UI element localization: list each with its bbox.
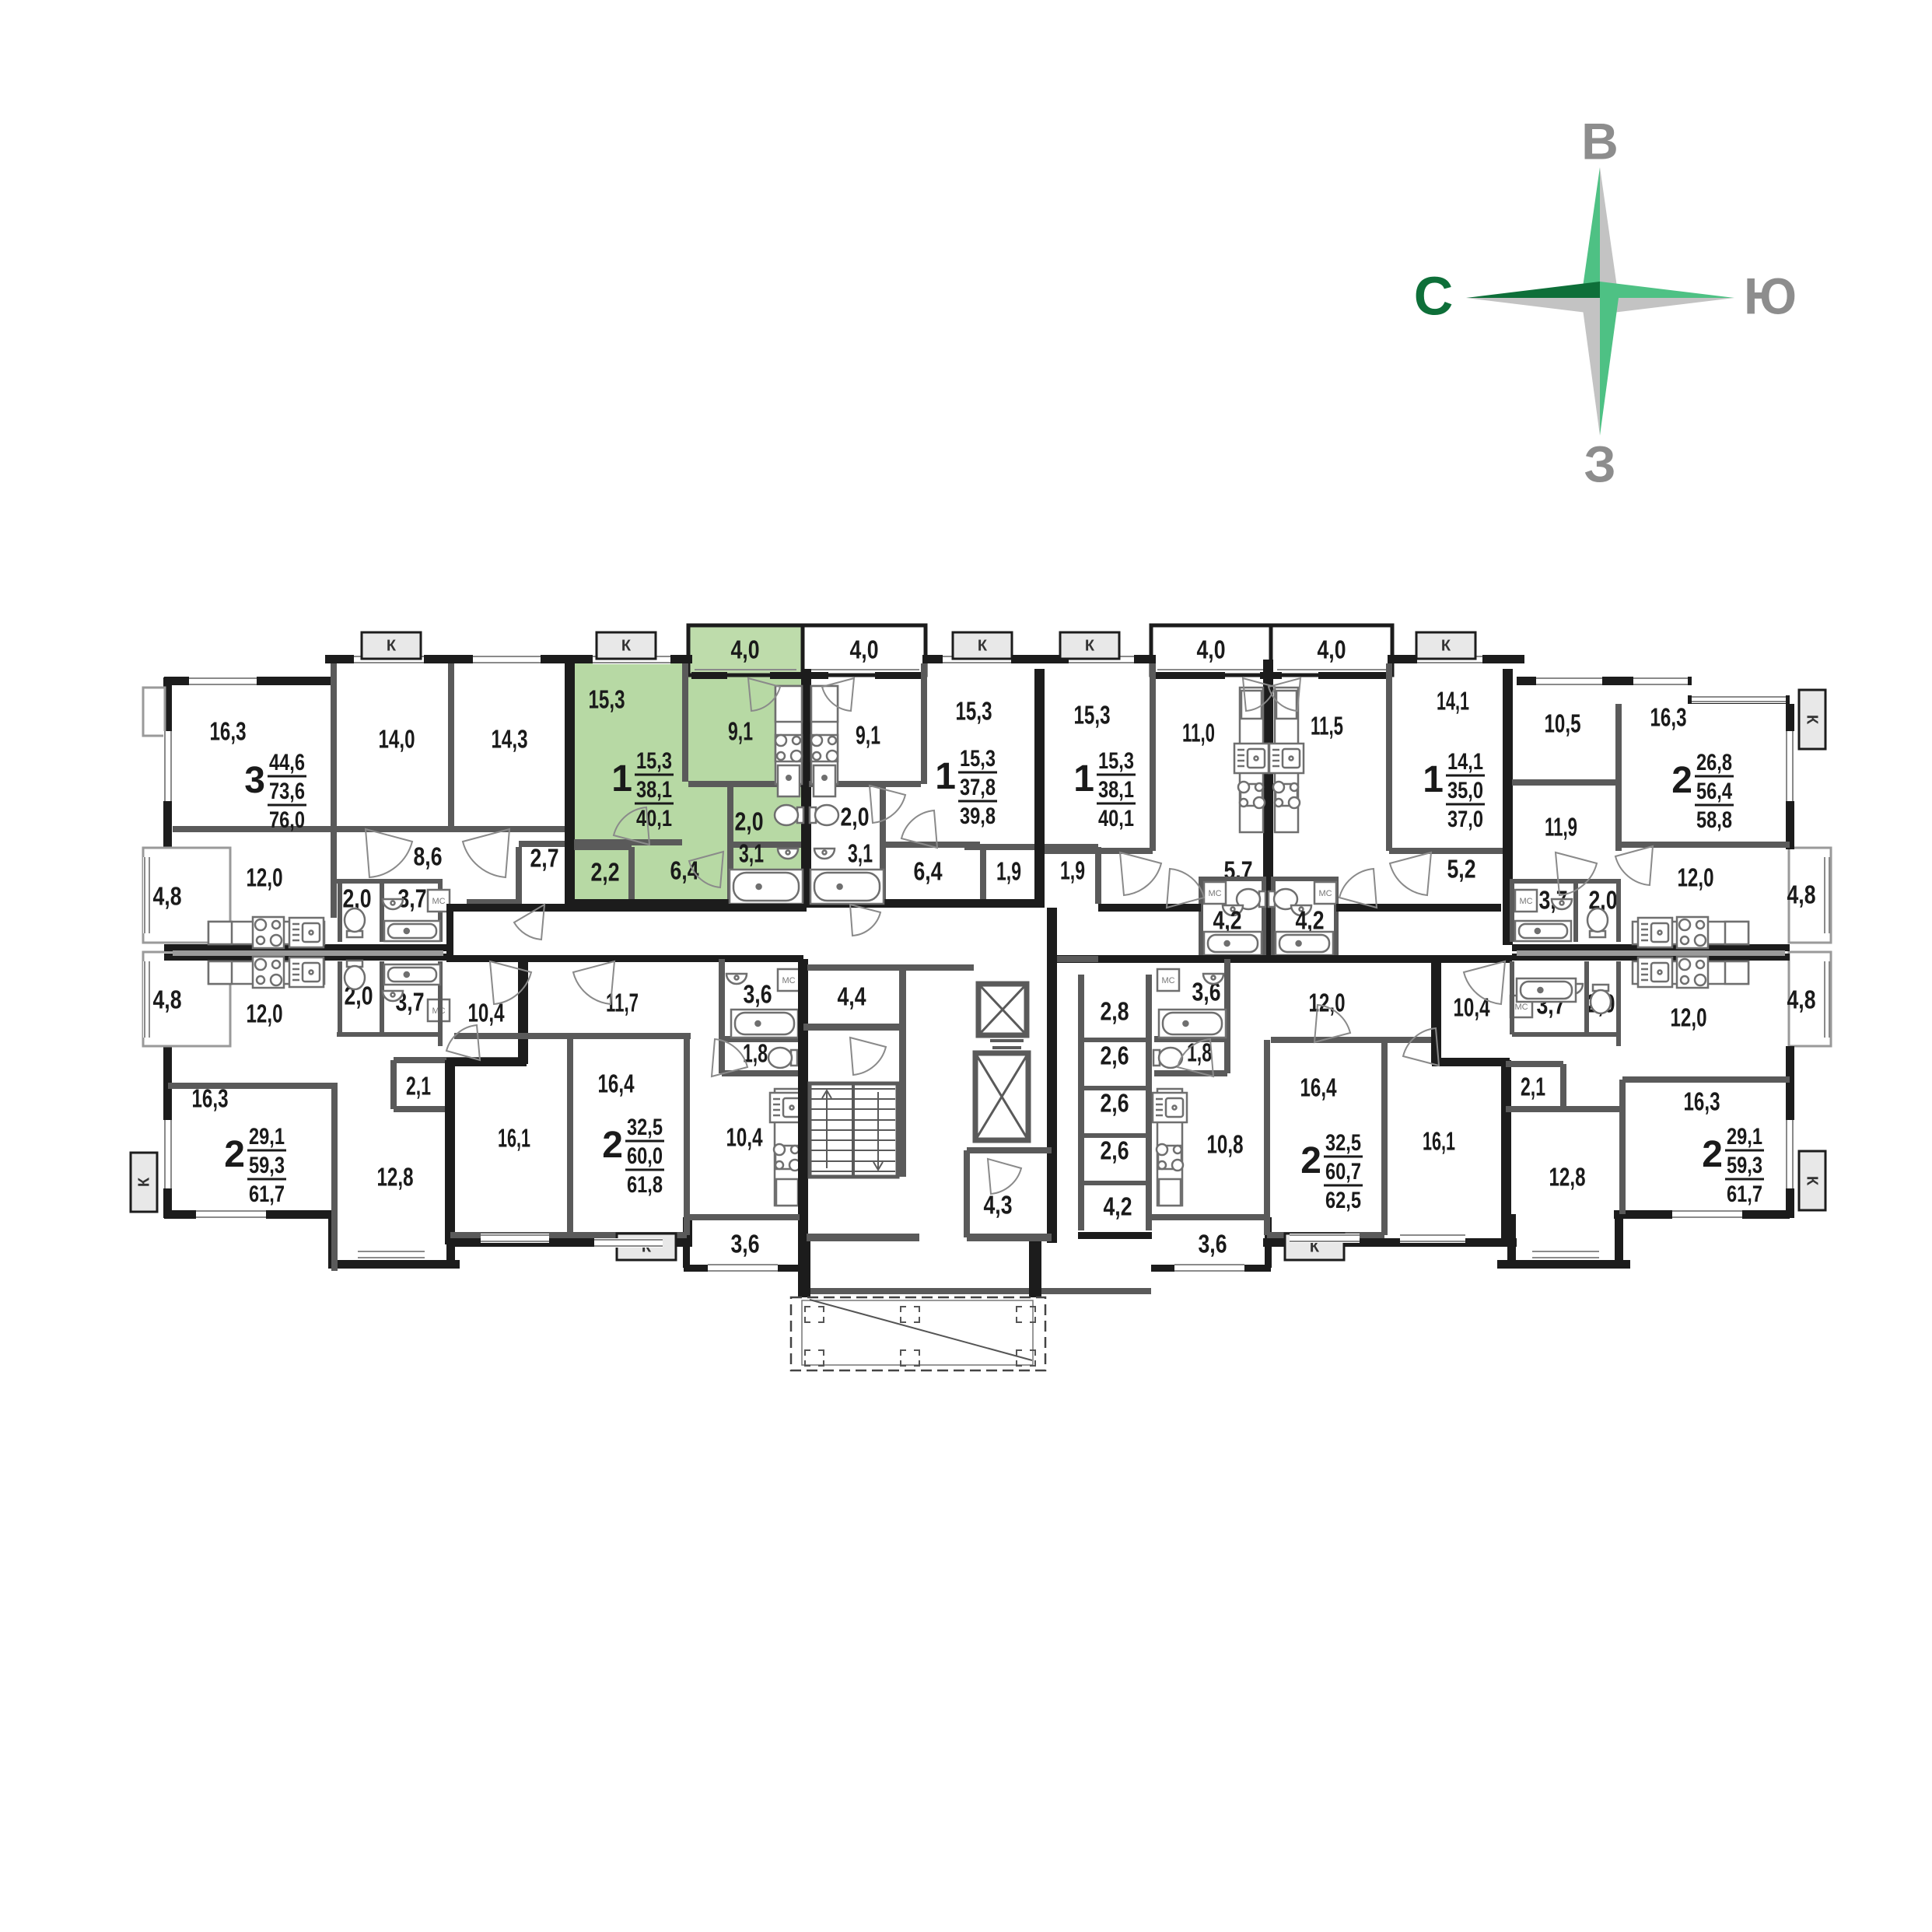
svg-text:1: 1 xyxy=(1073,758,1094,800)
svg-text:10,8: 10,8 xyxy=(1207,1130,1244,1159)
svg-text:14,1: 14,1 xyxy=(1447,749,1483,775)
svg-text:З: З xyxy=(1584,435,1615,492)
svg-text:10,4: 10,4 xyxy=(726,1123,763,1152)
svg-text:1: 1 xyxy=(935,756,956,797)
svg-text:1: 1 xyxy=(1423,759,1444,800)
svg-text:МС: МС xyxy=(1519,897,1532,906)
svg-text:2,0: 2,0 xyxy=(735,807,764,836)
svg-text:61,8: 61,8 xyxy=(627,1172,663,1198)
svg-text:К: К xyxy=(387,637,397,654)
svg-text:2,0: 2,0 xyxy=(841,803,870,831)
svg-text:2,6: 2,6 xyxy=(1101,1089,1129,1118)
svg-text:2: 2 xyxy=(602,1125,623,1166)
svg-text:2: 2 xyxy=(224,1134,245,1175)
svg-text:К: К xyxy=(621,637,632,654)
svg-text:35,0: 35,0 xyxy=(1447,778,1483,803)
svg-text:4,0: 4,0 xyxy=(1197,635,1226,664)
svg-text:59,3: 59,3 xyxy=(1727,1153,1762,1178)
svg-text:16,3: 16,3 xyxy=(210,717,247,746)
svg-text:15,3: 15,3 xyxy=(960,746,996,772)
svg-text:73,6: 73,6 xyxy=(269,779,305,804)
svg-text:4,3: 4,3 xyxy=(984,1191,1013,1220)
svg-text:3,6: 3,6 xyxy=(731,1230,760,1258)
svg-text:37,8: 37,8 xyxy=(960,775,996,800)
svg-text:2: 2 xyxy=(1300,1140,1321,1181)
svg-text:16,3: 16,3 xyxy=(1684,1087,1720,1116)
svg-text:58,8: 58,8 xyxy=(1696,807,1732,833)
svg-text:3,1: 3,1 xyxy=(739,839,764,868)
svg-text:16,1: 16,1 xyxy=(1423,1127,1455,1156)
svg-text:11,5: 11,5 xyxy=(1311,712,1343,740)
svg-text:39,8: 39,8 xyxy=(960,803,996,829)
svg-text:14,0: 14,0 xyxy=(379,725,415,754)
svg-text:2,6: 2,6 xyxy=(1101,1041,1129,1070)
svg-text:8,6: 8,6 xyxy=(414,842,443,871)
svg-text:12,0: 12,0 xyxy=(1671,1003,1707,1032)
svg-text:МС: МС xyxy=(1514,1003,1528,1012)
svg-text:9,1: 9,1 xyxy=(728,717,753,746)
svg-text:Ю: Ю xyxy=(1744,267,1797,324)
svg-text:2: 2 xyxy=(1671,760,1692,801)
svg-text:3,1: 3,1 xyxy=(848,839,873,868)
svg-text:6,4: 6,4 xyxy=(670,856,700,885)
svg-text:2,7: 2,7 xyxy=(530,844,559,873)
svg-text:2,6: 2,6 xyxy=(1101,1136,1129,1165)
svg-text:В: В xyxy=(1581,112,1619,170)
svg-text:61,7: 61,7 xyxy=(1727,1181,1762,1207)
svg-text:9,1: 9,1 xyxy=(856,721,880,750)
svg-text:76,0: 76,0 xyxy=(269,807,305,833)
svg-text:1,9: 1,9 xyxy=(996,857,1021,886)
svg-text:44,6: 44,6 xyxy=(269,750,305,775)
svg-text:32,5: 32,5 xyxy=(627,1115,663,1140)
svg-text:К: К xyxy=(978,637,988,654)
svg-text:12,0: 12,0 xyxy=(247,863,283,892)
svg-text:15,3: 15,3 xyxy=(589,685,625,714)
svg-text:К: К xyxy=(135,1177,152,1187)
svg-text:4,2: 4,2 xyxy=(1213,906,1242,935)
svg-text:2,1: 2,1 xyxy=(406,1072,431,1101)
svg-text:4,4: 4,4 xyxy=(838,982,867,1011)
svg-text:37,0: 37,0 xyxy=(1447,807,1483,832)
svg-text:11,0: 11,0 xyxy=(1182,719,1215,747)
svg-text:К: К xyxy=(1804,1176,1821,1186)
svg-text:15,3: 15,3 xyxy=(956,697,992,726)
svg-text:4,0: 4,0 xyxy=(1318,635,1346,664)
svg-text:2,2: 2,2 xyxy=(591,858,620,887)
svg-text:10,4: 10,4 xyxy=(1454,993,1490,1022)
svg-text:4,8: 4,8 xyxy=(153,985,182,1014)
svg-text:16,3: 16,3 xyxy=(1650,703,1687,732)
svg-text:4,8: 4,8 xyxy=(1787,880,1816,909)
svg-text:26,8: 26,8 xyxy=(1696,750,1732,775)
svg-text:38,1: 38,1 xyxy=(636,777,672,803)
svg-text:МС: МС xyxy=(1161,976,1174,985)
svg-text:10,5: 10,5 xyxy=(1545,709,1581,738)
svg-text:МС: МС xyxy=(1208,889,1221,898)
svg-text:2,1: 2,1 xyxy=(1521,1073,1545,1101)
svg-text:62,5: 62,5 xyxy=(1325,1188,1361,1213)
svg-text:5,2: 5,2 xyxy=(1447,855,1476,884)
svg-text:2,8: 2,8 xyxy=(1101,997,1129,1026)
svg-text:11,9: 11,9 xyxy=(1545,813,1577,842)
svg-text:С: С xyxy=(1414,265,1454,326)
svg-text:К: К xyxy=(1804,715,1821,725)
svg-text:МС: МС xyxy=(432,897,445,906)
svg-text:6,4: 6,4 xyxy=(914,857,943,886)
svg-text:38,1: 38,1 xyxy=(1098,777,1134,803)
svg-text:4,0: 4,0 xyxy=(850,635,879,664)
svg-text:МС: МС xyxy=(1318,889,1332,898)
svg-text:К: К xyxy=(1085,637,1095,654)
svg-text:16,4: 16,4 xyxy=(598,1069,635,1098)
svg-text:4,2: 4,2 xyxy=(1104,1192,1132,1221)
svg-text:16,4: 16,4 xyxy=(1300,1073,1337,1102)
svg-text:3,6: 3,6 xyxy=(744,980,772,1009)
svg-text:14,1: 14,1 xyxy=(1437,687,1469,716)
svg-text:61,7: 61,7 xyxy=(249,1181,285,1207)
svg-text:4,8: 4,8 xyxy=(153,882,182,911)
svg-text:12,0: 12,0 xyxy=(247,999,283,1028)
svg-text:1,9: 1,9 xyxy=(1060,856,1085,885)
svg-text:3,6: 3,6 xyxy=(1199,1230,1227,1258)
svg-text:59,3: 59,3 xyxy=(249,1153,285,1178)
svg-text:1: 1 xyxy=(611,758,632,800)
svg-text:МС: МС xyxy=(782,976,795,985)
svg-text:16,1: 16,1 xyxy=(498,1124,530,1153)
svg-text:14,3: 14,3 xyxy=(492,725,528,754)
svg-text:60,7: 60,7 xyxy=(1325,1159,1361,1185)
svg-text:40,1: 40,1 xyxy=(636,806,672,831)
svg-text:4,2: 4,2 xyxy=(1296,906,1325,935)
svg-text:2: 2 xyxy=(1702,1134,1723,1175)
svg-text:29,1: 29,1 xyxy=(1727,1124,1762,1150)
svg-text:32,5: 32,5 xyxy=(1325,1130,1361,1156)
svg-text:12,0: 12,0 xyxy=(1309,989,1346,1017)
svg-text:12,8: 12,8 xyxy=(1549,1163,1586,1192)
svg-text:56,4: 56,4 xyxy=(1696,779,1732,804)
svg-text:К: К xyxy=(1441,637,1451,654)
svg-text:15,3: 15,3 xyxy=(1098,748,1134,774)
svg-text:12,8: 12,8 xyxy=(377,1163,414,1192)
svg-text:29,1: 29,1 xyxy=(249,1124,285,1150)
svg-text:15,3: 15,3 xyxy=(1074,701,1111,730)
svg-text:4,8: 4,8 xyxy=(1787,985,1816,1014)
svg-text:12,0: 12,0 xyxy=(1678,863,1714,892)
svg-text:3: 3 xyxy=(244,760,265,801)
svg-text:15,3: 15,3 xyxy=(636,748,672,774)
svg-text:60,0: 60,0 xyxy=(627,1143,663,1169)
svg-text:4,0: 4,0 xyxy=(731,635,760,664)
svg-text:40,1: 40,1 xyxy=(1098,806,1134,831)
